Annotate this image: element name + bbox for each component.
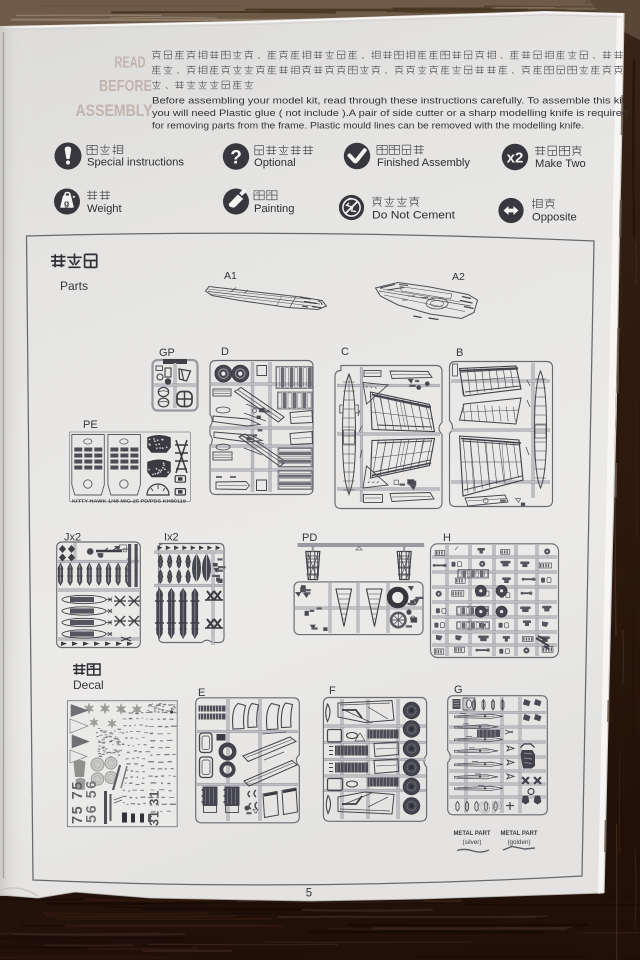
svg-text:?: ?	[230, 148, 242, 169]
svg-text:KITTY HAWK 1/48 MiG-25 PD/PDS: KITTY HAWK 1/48 MiG-25 PD/PDS KH80119	[72, 499, 187, 504]
svg-text:Before assembling your model k: Before assembling your model kit, read t…	[152, 96, 628, 107]
svg-text:READ: READ	[115, 55, 146, 72]
svg-text:Painting: Painting	[254, 203, 294, 215]
svg-text:you will need Plastic glue ( n: you will need Plastic glue ( not include…	[152, 108, 628, 119]
svg-text:F: F	[329, 685, 336, 697]
svg-text:Parts: Parts	[60, 279, 88, 293]
svg-text:PE: PE	[83, 419, 98, 431]
svg-text:A1: A1	[224, 270, 237, 282]
svg-text:g: g	[64, 198, 69, 208]
svg-text:x2: x2	[507, 150, 524, 167]
svg-text:GP: GP	[159, 347, 175, 359]
svg-text:ASSEMBLY: ASSEMBLY	[76, 102, 153, 120]
svg-text:D: D	[221, 346, 229, 358]
svg-text:BEFORE: BEFORE	[99, 78, 152, 95]
svg-text:56 56: 56 56	[84, 779, 100, 823]
svg-text:Finished Assembly: Finished Assembly	[377, 157, 470, 169]
svg-text:(golden): (golden)	[507, 839, 530, 846]
svg-text:5: 5	[306, 888, 312, 900]
svg-text:E: E	[198, 687, 205, 699]
svg-text:C: C	[341, 346, 349, 358]
svg-text:PD: PD	[302, 532, 317, 544]
svg-text:H: H	[443, 532, 451, 544]
svg-text:Weight: Weight	[87, 203, 123, 215]
svg-text:Opposite: Opposite	[532, 212, 577, 224]
svg-text:Special instructions: Special instructions	[87, 157, 184, 169]
svg-text:GP: GP	[478, 800, 503, 817]
svg-text:METAL PART: METAL PART	[454, 830, 491, 837]
svg-text:(silver): (silver)	[463, 839, 482, 846]
svg-text:METAL PART: METAL PART	[501, 830, 538, 837]
svg-text:Ix2: Ix2	[164, 532, 179, 544]
svg-text:Decal: Decal	[73, 678, 104, 692]
svg-text:for removing parts from the fr: for removing parts from the frame. Plast…	[152, 121, 584, 132]
svg-text:G: G	[454, 684, 463, 696]
svg-text:Do Not Cement: Do Not Cement	[372, 210, 456, 222]
svg-text:B: B	[456, 347, 463, 359]
svg-text:Optional: Optional	[254, 157, 296, 169]
svg-text:Make Two: Make Two	[535, 158, 586, 170]
svg-text:A2: A2	[452, 271, 465, 283]
